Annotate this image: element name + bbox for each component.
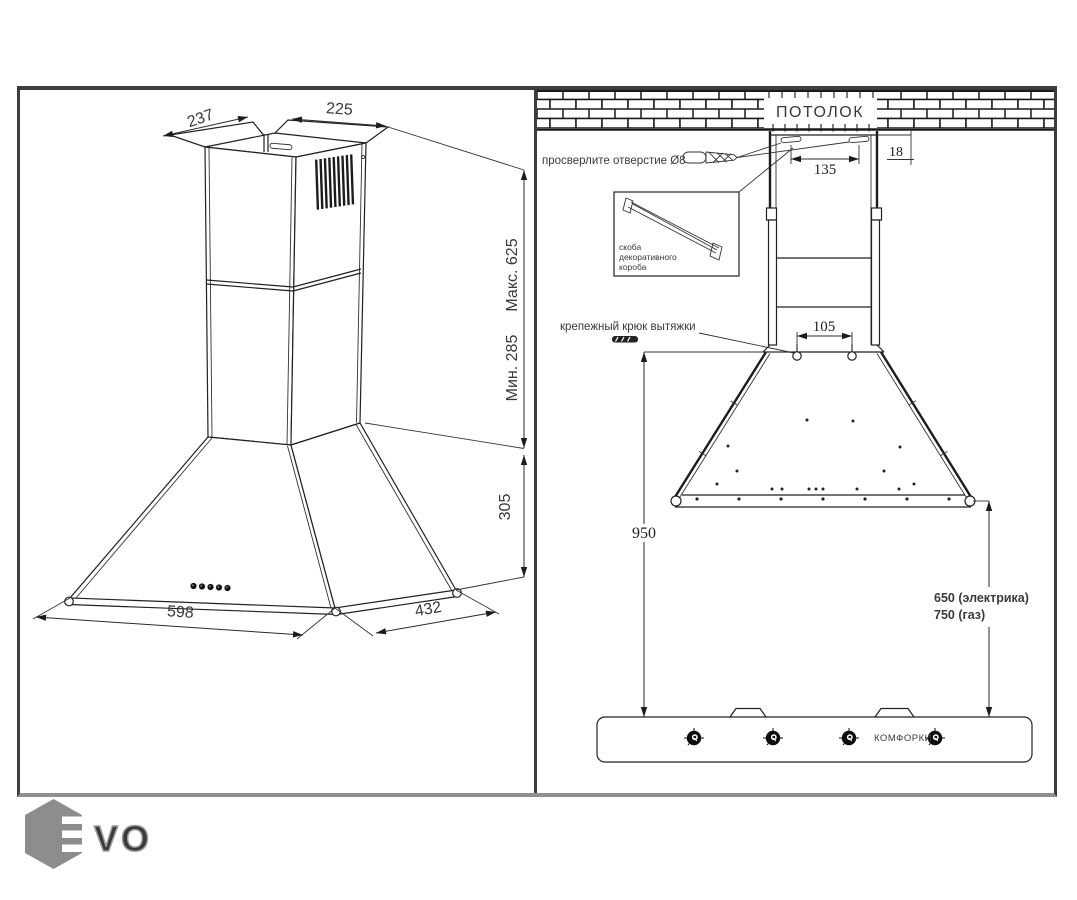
hood-cone-front — [671, 344, 975, 507]
dim-slot-spacing-label: 135 — [814, 162, 837, 178]
ceiling-bricks: ПОТОЛОК — [537, 90, 1054, 132]
logo-e-bars — [62, 817, 93, 853]
hood-cone — [65, 423, 462, 616]
hook-icon — [612, 336, 638, 343]
duct-dimensions: 135 18 — [791, 131, 914, 178]
dim-body-width-label: 598 — [166, 603, 194, 622]
vent-grille-icon — [316, 154, 353, 209]
rivet-dots — [695, 419, 950, 501]
dim-ceiling-gap-label: 18 — [889, 145, 903, 160]
dim-top-depth-label: 237 — [185, 106, 216, 131]
installation-diagram-svg: ПОТОЛОК — [537, 90, 1054, 793]
logo-letters: VO — [94, 818, 152, 859]
burners-label: КОМФОРКИ — [874, 733, 932, 744]
dim-chimney-max-label: Макс. 625 — [504, 238, 521, 311]
manual-page: { "left_view": { "dim_top_depth": "237",… — [0, 0, 1077, 900]
isometric-view-svg: 237 225 598 432 Макс. 625 Мин. 285 305 — [20, 90, 534, 793]
dim-hook-spacing-label: 105 — [813, 319, 836, 335]
dim-chimney-min-label: Мин. 285 — [504, 335, 521, 402]
hook-note-label: крепежный крюк вытяжки — [560, 321, 696, 333]
dim-gas-label: 750 (газ) — [934, 608, 985, 622]
mount-slot-icon — [849, 136, 869, 143]
burner-bump-icon — [730, 709, 766, 718]
dim-body-height-label: 305 — [497, 494, 514, 521]
mount-slot-icon — [781, 136, 801, 143]
evo-logo: VO — [22, 798, 182, 878]
dim-electric-label: 650 (электрика) — [934, 591, 1029, 605]
dim-floor-height-label: 950 — [632, 525, 656, 542]
drill-bit-icon — [683, 152, 737, 163]
bracket-note-line2: декоративного — [619, 252, 677, 262]
chimney-duct — [205, 143, 366, 446]
bracket-note-line3: короба — [619, 262, 647, 272]
bracket-note-line1: скоба — [619, 242, 641, 252]
isometric-view-panel: 237 225 598 432 Макс. 625 Мин. 285 305 — [20, 90, 537, 793]
installation-diagram-panel: ПОТОЛОК — [537, 90, 1054, 793]
drill-note-label: просверлите отверстие Ø8 — [542, 155, 686, 167]
dim-body-depth-label: 432 — [414, 599, 443, 620]
hook-note: крепежный крюк вытяжки — [560, 321, 794, 353]
dim-top-width-label: 225 — [325, 100, 353, 119]
hook-spacing-dim: 105 — [797, 319, 852, 350]
ceiling-label: ПОТОЛОК — [776, 104, 864, 121]
drill-note: просверлите отверстие Ø8 — [542, 142, 849, 167]
drawing-sheet: 237 225 598 432 Макс. 625 Мин. 285 305 — [17, 86, 1057, 797]
stove: КОМФОРКИ — [597, 709, 1032, 763]
burner-bump-icon — [875, 709, 914, 718]
height-dimensions: 950 650 (электрика) 750 (газ) — [629, 352, 1037, 717]
